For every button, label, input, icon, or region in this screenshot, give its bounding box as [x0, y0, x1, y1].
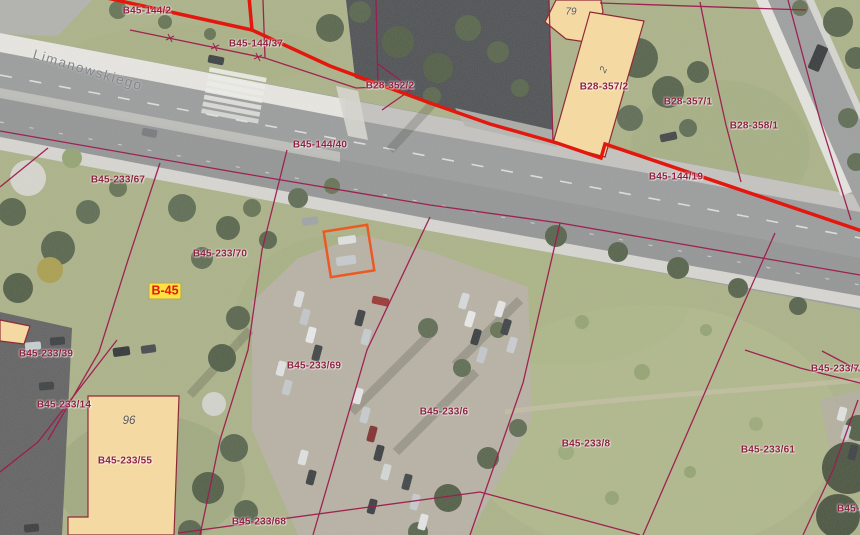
parcel-label: B45-233/69 — [287, 361, 341, 372]
building-number: 96 — [123, 415, 136, 427]
parcel-label: B45-144/19 — [649, 172, 703, 183]
parcel-label: B45-144/37 — [229, 39, 283, 50]
parcel-label: B45-233/70 — [193, 249, 247, 260]
map-viewport[interactable]: Limanowskiego B45-144/2 B45-144/37 B28-3… — [0, 0, 860, 535]
parcel-label: B45-2 — [837, 504, 860, 515]
parcel-label: B28-352/2 — [366, 81, 415, 92]
parcel-label: B45-144/2 — [123, 6, 172, 17]
parcel-label: B45-144/40 — [293, 140, 347, 151]
parcel-label: B45-233/68 — [232, 517, 286, 528]
parcel-label: B45-233/61 — [741, 445, 795, 456]
parcel-label: B45-233/8 — [562, 439, 611, 450]
parcel-label: B45-233/67 — [91, 175, 145, 186]
parcel-label: B28-358/1 — [730, 121, 779, 132]
parcel-label: B28-357/1 — [664, 97, 713, 108]
parcel-label: B45-233/14 — [37, 400, 91, 411]
parcel-label: B28-357/2 — [580, 82, 629, 93]
building-number: 79 — [565, 7, 576, 18]
area-code-highlight-label: B-45 — [149, 284, 180, 299]
parcel-label: B45-233/55 — [98, 456, 152, 467]
parcel-label: B45-233/6 — [420, 407, 469, 418]
parcel-label: B45-233/39 — [19, 349, 73, 360]
parcel-label: B45-233/72 — [811, 364, 860, 375]
